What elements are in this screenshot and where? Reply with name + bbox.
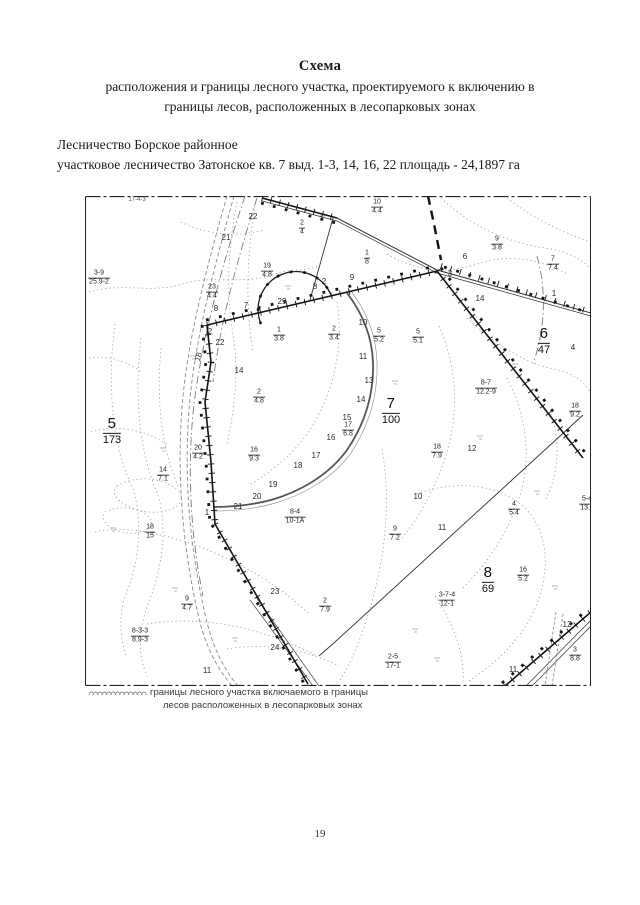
map-label: 11 <box>438 524 446 532</box>
map-label: 1 <box>205 509 209 517</box>
map-label: 7 <box>244 302 248 310</box>
map-label: 8-712.2-9 <box>475 380 497 397</box>
map-label: 12 <box>563 621 572 629</box>
subtitle-line-1: расположения и границы лесного участка, … <box>0 79 640 95</box>
map-label: 10 <box>414 493 423 501</box>
map-label: 8-3-38.9-3 <box>131 628 149 645</box>
map-label: 93.8 <box>491 236 503 253</box>
map-label: 77.4 <box>547 256 559 273</box>
map-label: 45.4 <box>508 501 520 518</box>
map-label: 14 <box>235 367 244 375</box>
map-panel: 17-4-3 517364771008693-925.9-224104.4194… <box>85 196 591 686</box>
map-label: 55.1 <box>412 329 424 346</box>
map-label: 11 <box>359 353 367 361</box>
subtitle-line-2: границы лесов, расположенных в лесопарко… <box>0 99 640 115</box>
map-label: 9 <box>350 274 354 282</box>
legend-text-line-2: лесов расположенных в лесопарковых зонах <box>163 700 362 711</box>
map-label: 10 <box>359 319 368 327</box>
map-label: 7100 <box>382 396 400 426</box>
map-label: 22 <box>216 339 225 347</box>
map-label: 11 <box>509 666 517 674</box>
map-label: 29 <box>278 298 287 306</box>
map-label: 1815 <box>145 524 155 541</box>
map-label: 2 <box>208 328 212 336</box>
map-label: 24 <box>299 220 305 237</box>
map-label: 194.8 <box>261 263 273 280</box>
map-label: 27.9 <box>319 598 331 615</box>
map-label: 6 <box>463 253 467 261</box>
map-label: 18 <box>364 250 370 267</box>
map-label: 23.4 <box>328 326 340 343</box>
map-label: 13 <box>365 377 374 385</box>
map-label: 187.9 <box>431 444 443 461</box>
map-label: 14 <box>357 396 366 404</box>
page-title: Схема <box>0 58 640 75</box>
map-label: 24.8 <box>253 389 265 406</box>
map-label: 20 <box>253 493 262 501</box>
map-label: 16 <box>327 434 336 442</box>
map-label: 94.7 <box>181 596 193 613</box>
map-label: 19 <box>269 481 278 489</box>
map-label: 147.1 <box>157 467 169 484</box>
document-page: Схема расположения и границы лесного уча… <box>0 0 640 905</box>
map-label: 8-410-1A <box>285 509 306 526</box>
map-label: 21 <box>222 234 231 242</box>
map-label: 55.2 <box>373 328 385 345</box>
map-label: 18 <box>294 462 303 470</box>
map-label: 15 <box>343 414 352 422</box>
map-label: 3 <box>448 270 452 278</box>
map-label: 38.8 <box>569 647 581 664</box>
map-label: 22 <box>249 213 258 221</box>
map-label: 3-925.9-2 <box>88 270 110 287</box>
page-number: 19 <box>0 828 640 840</box>
map-label: 97.2 <box>389 526 401 543</box>
map-label: 3-7-412-1 <box>439 592 455 609</box>
plot-line: участковое лесничество Затонское кв. 7 в… <box>57 157 520 173</box>
map-label: 17 <box>312 452 321 460</box>
roads <box>180 196 591 686</box>
map-label: 13.8 <box>273 327 285 344</box>
map-label: 24 <box>271 644 280 652</box>
map-corner-note: 17-4-3 <box>128 197 145 203</box>
legend-text-line-1: границы лесного участка включаемого в гр… <box>150 687 368 698</box>
map-label: 165.2 <box>517 567 529 584</box>
map-label: 169.3 <box>248 447 260 464</box>
map-label: 647 <box>538 326 550 356</box>
map-label: 8 <box>313 283 317 291</box>
map-label: 869 <box>482 565 494 595</box>
map-label: 189.2 <box>569 403 581 420</box>
map-label: 4 <box>571 344 575 352</box>
map-label: 5173 <box>103 416 121 446</box>
map-label: 5-413.7 <box>579 496 591 513</box>
map-label: 2 <box>322 278 326 286</box>
map-label: 1 <box>552 290 556 298</box>
map-frame <box>86 197 591 686</box>
map-drawing <box>85 196 591 686</box>
map-label: 12 <box>468 445 477 453</box>
wavy-line-icon <box>88 688 150 700</box>
map-label: 21 <box>234 503 243 511</box>
map-label: 104.4 <box>371 199 383 216</box>
bold-dashed-road <box>428 196 441 260</box>
map-label: 14 <box>476 295 485 303</box>
map-label: 234.4 <box>206 284 218 301</box>
forestry-line: Лесничество Борское районное <box>57 137 238 153</box>
surveyed-boundaries <box>200 198 591 686</box>
map-label: 11 <box>203 667 211 675</box>
map-label: 23 <box>271 588 280 596</box>
parcel-curve <box>214 291 377 511</box>
map-label: 204.2 <box>192 445 204 462</box>
map-label: 8 <box>214 305 218 313</box>
contour-lines <box>85 198 590 684</box>
map-label: 2-517-1 <box>385 654 401 671</box>
map-label: 176.8 <box>342 422 354 439</box>
